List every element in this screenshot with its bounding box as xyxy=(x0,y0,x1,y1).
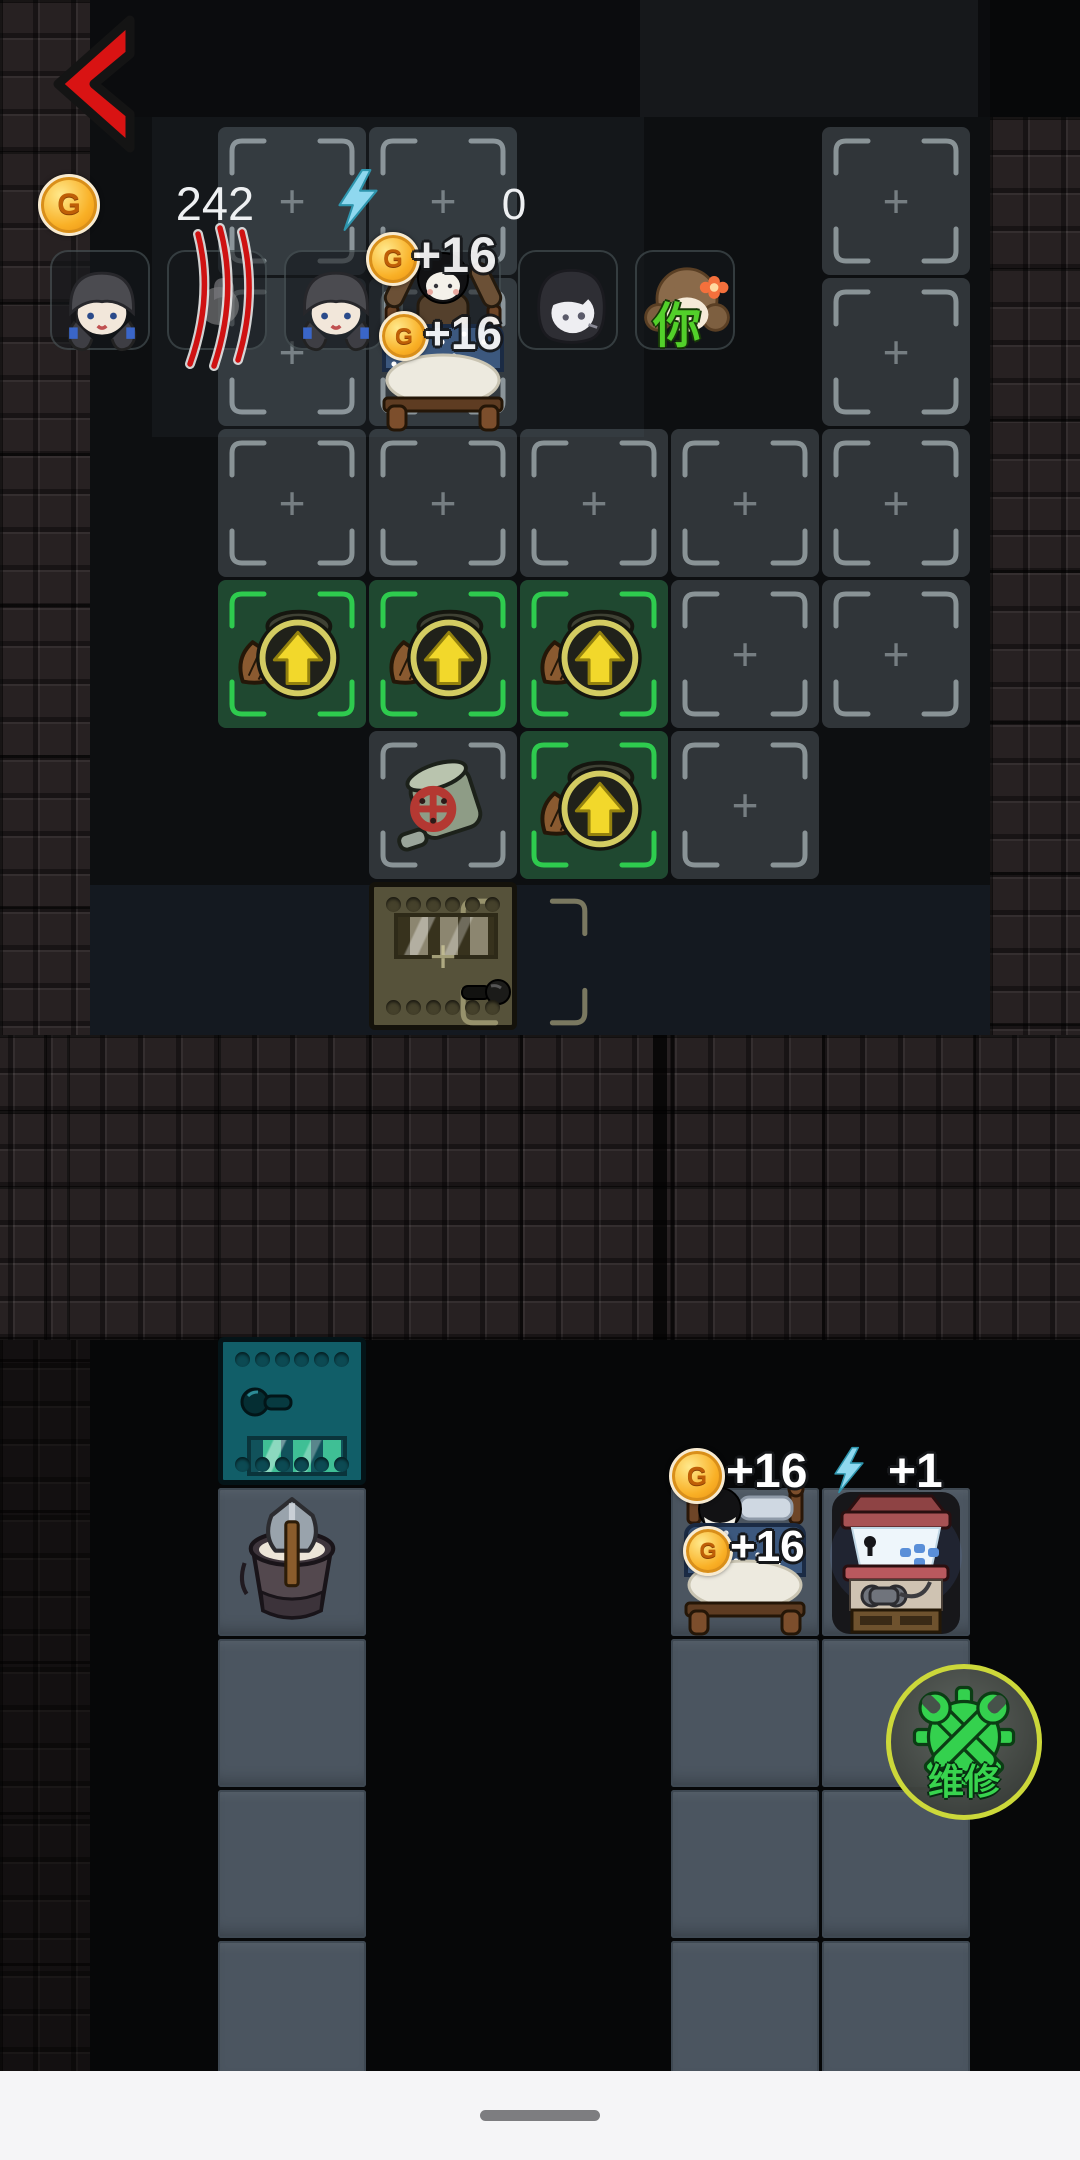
upgrade-item-icon xyxy=(535,746,653,864)
board-tile-empty[interactable]: + xyxy=(822,278,970,426)
left-wall-shadow xyxy=(0,1340,90,2071)
board-tile-empty[interactable]: + xyxy=(671,731,819,879)
bucket-shovel-icon xyxy=(230,1495,354,1629)
tile-plus-icon: + xyxy=(218,429,366,577)
reward-coin-text: +16 xyxy=(424,306,502,360)
mid-wall-band xyxy=(0,1035,1080,1340)
reward-coin-icon: G xyxy=(669,1448,725,1504)
board-tile-upgrade-item[interactable] xyxy=(218,580,366,728)
game-screen: + + + + + + + + + + + + + xyxy=(0,0,1080,2160)
tile-plus-icon: + xyxy=(520,429,668,577)
repair-button[interactable]: 维修 xyxy=(886,1664,1042,1820)
floor-tile[interactable] xyxy=(671,1639,819,1787)
tile-plus-icon: + xyxy=(822,580,970,728)
teal-metal-door-tile[interactable] xyxy=(218,1337,366,1485)
board-tile-upgrade-item[interactable] xyxy=(520,580,668,728)
upgrade-item-icon xyxy=(535,595,653,713)
mid-wall-seam-h xyxy=(0,1110,1080,1114)
upgrade-item-icon xyxy=(384,595,502,713)
floor-tile[interactable] xyxy=(218,1941,366,2089)
reward-coin-icon: G xyxy=(379,311,429,361)
mid-wall-seam-v xyxy=(653,1035,667,1340)
party-slot-1[interactable] xyxy=(50,250,150,350)
board-tile-empty[interactable]: + xyxy=(520,429,668,577)
top-right-panel xyxy=(640,0,978,120)
door-rivets-bottom xyxy=(386,1000,500,1015)
floor-tile[interactable] xyxy=(822,1941,970,2089)
party-slot-5[interactable] xyxy=(518,250,618,350)
door-handle-icon xyxy=(239,1384,295,1420)
reward-coin-total: +16 xyxy=(726,1444,807,1499)
tile-plus-icon: + xyxy=(671,731,819,879)
floor-tile[interactable] xyxy=(218,1639,366,1787)
home-indicator[interactable] xyxy=(480,2110,600,2121)
board-tile-empty[interactable]: + xyxy=(822,127,970,275)
girl-pigtails-avatar xyxy=(52,256,152,356)
repair-button-label: 维修 xyxy=(891,1753,1037,1805)
floor-tile-arcade[interactable] xyxy=(822,1488,970,1636)
tile-plus-icon: + xyxy=(822,278,970,426)
tile-plus-icon: + xyxy=(822,429,970,577)
tile-plus-icon: + xyxy=(671,429,819,577)
energy-icon xyxy=(832,1442,866,1498)
board-tile-empty[interactable]: + xyxy=(671,580,819,728)
reward-coin-text: +16 xyxy=(412,226,497,284)
back-button[interactable] xyxy=(38,10,142,158)
arcade-machine-icon xyxy=(826,1486,966,1638)
claw-marks-icon xyxy=(154,216,284,376)
board-tile-empty[interactable]: + xyxy=(822,580,970,728)
board-tile-empty[interactable]: + xyxy=(369,429,517,577)
tile-plus-icon: + xyxy=(822,127,970,275)
board-tile-empty[interactable]: + xyxy=(671,429,819,577)
upgrade-item-icon xyxy=(233,595,351,713)
party-slot-2-injured[interactable] xyxy=(167,250,267,350)
olive-metal-door-tile[interactable]: + xyxy=(369,882,517,1030)
board-tile-upgrade-item[interactable] xyxy=(369,580,517,728)
reward-coin-icon: G xyxy=(683,1526,733,1576)
door-rivets-top xyxy=(235,1352,349,1367)
floor-tile[interactable] xyxy=(671,1790,819,1938)
valve-canister-icon xyxy=(384,746,502,864)
coins-value: 242 xyxy=(150,176,280,231)
tile-plus-icon: + xyxy=(369,429,517,577)
pale-girl-avatar xyxy=(520,256,620,356)
tile-plus-icon: + xyxy=(671,580,819,728)
coin-icon: G xyxy=(38,174,100,236)
board-tile-empty[interactable]: + xyxy=(822,429,970,577)
door-rivets-bottom xyxy=(235,1457,349,1472)
board-tile-empty[interactable]: + xyxy=(218,429,366,577)
energy-icon xyxy=(335,168,381,232)
board-tile-upgrade-item[interactable] xyxy=(520,731,668,879)
reward-energy-total: +1 xyxy=(888,1444,943,1499)
floor-tile-bucket[interactable] xyxy=(218,1488,366,1636)
floor-tile[interactable] xyxy=(218,1790,366,1938)
player-you-label: 你 xyxy=(653,286,701,356)
reward-bed-coin: +16 xyxy=(730,1522,805,1572)
party-slot-6-player[interactable]: 你 xyxy=(635,250,735,350)
board-tile-valve-item[interactable] xyxy=(369,731,517,879)
floor-tile[interactable] xyxy=(671,1941,819,2089)
energy-value: 0 xyxy=(482,180,546,230)
